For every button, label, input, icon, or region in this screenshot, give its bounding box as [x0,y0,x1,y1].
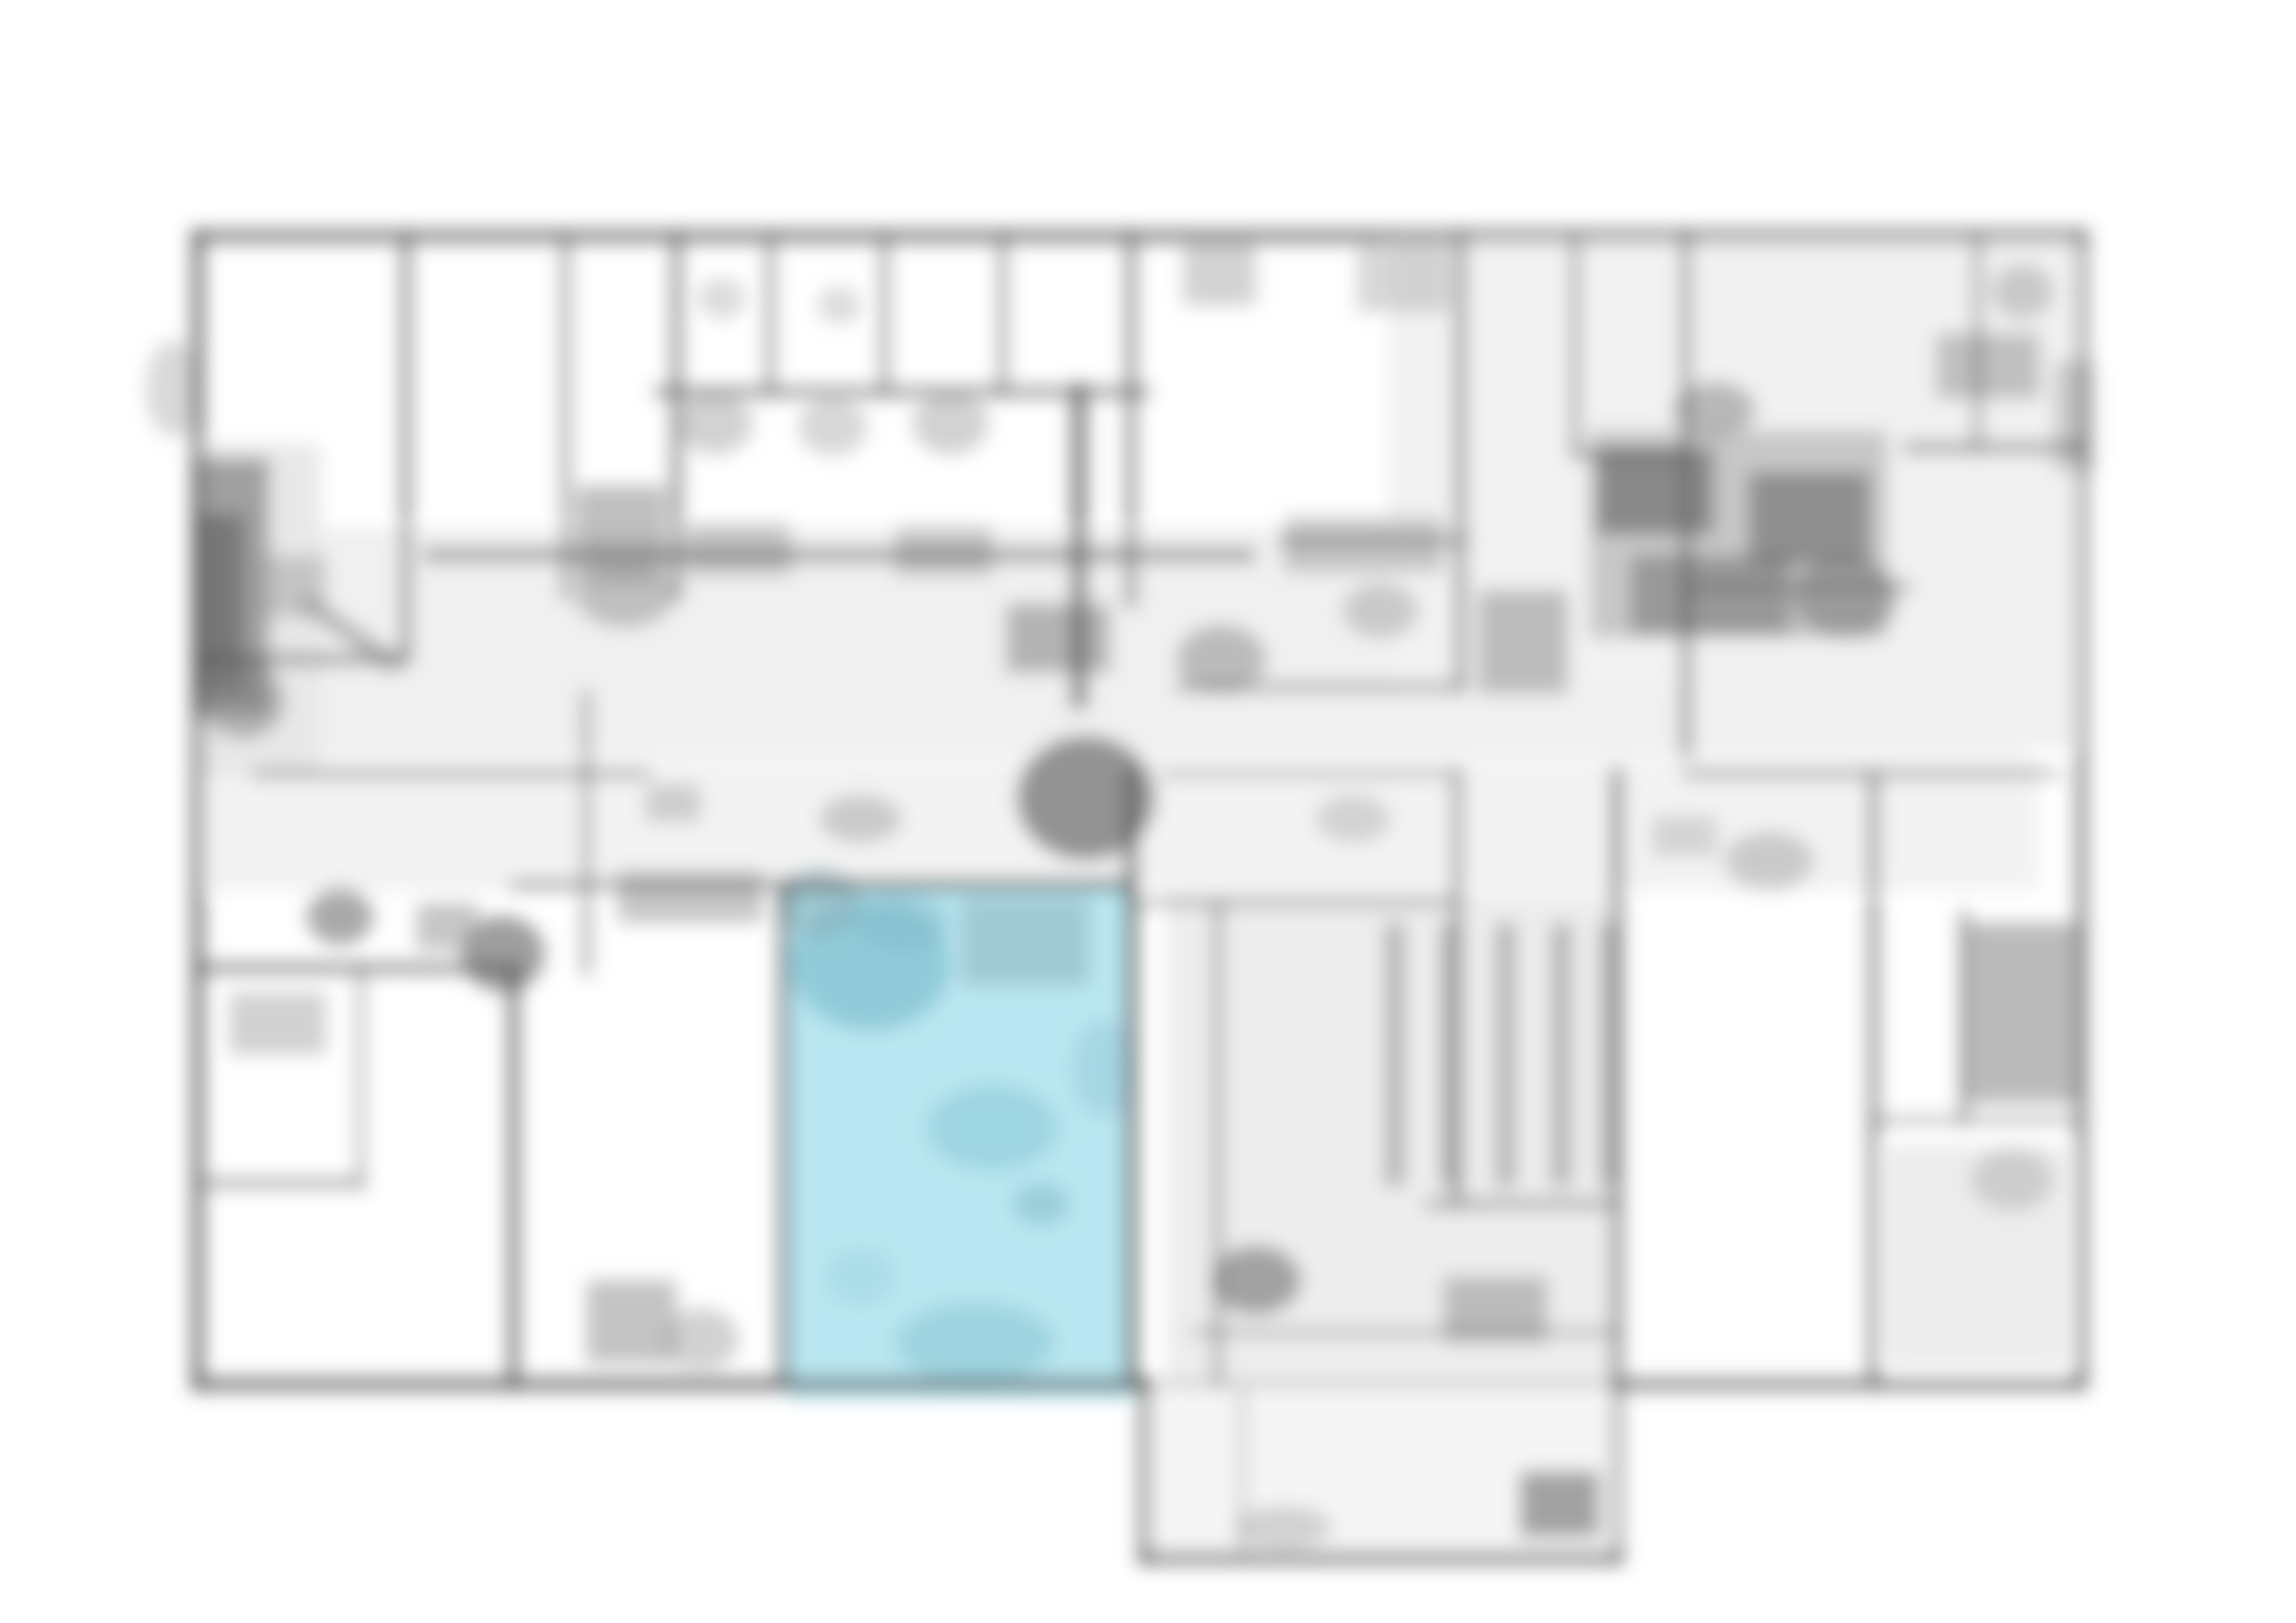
plan-detail-blob [307,887,373,945]
plan-detail-blob [1794,555,1898,638]
highlighted-room-detail [826,1249,895,1305]
plan-detail-blob [1235,1506,1332,1547]
plan-detail-blob [1315,794,1391,843]
plan-detail-blob [1343,583,1419,638]
plan-detail-blob [586,1280,677,1363]
plan-detail-blob [1006,604,1110,673]
plan-detail-blob [819,794,902,843]
plan-detail-blob [677,392,753,454]
plan-detail-blob [1384,923,1405,1187]
plan-detail-blob [1357,243,1450,312]
plan-detail-blob [1520,1471,1599,1537]
plan-detail-blob [1478,590,1568,694]
plan-detail-blob [618,871,763,923]
highlighted-room-detail [895,1302,1055,1383]
plan-detail-blob [2054,361,2095,472]
plan-detail-blob [1964,923,2082,1103]
floorplan-svg [0,0,2296,1623]
plan-detail-blob [1551,923,1572,1187]
plan-detail-blob [1991,264,2054,319]
plan-detail-blob [1211,1246,1301,1315]
plan-detail-blob [1971,1148,2054,1211]
plan-detail-blob [663,1308,739,1370]
plan-detail-blob [576,566,673,628]
plan-detail-blob [1495,923,1516,1187]
plan-detail-blob [416,902,479,951]
plan-detail-blob [1596,448,1714,534]
plan-detail-blob [1749,472,1870,566]
plan-detail-blob [243,555,326,618]
plan-detail-blob [912,392,989,454]
plan-blur-group [146,236,2095,1558]
floorplan-image [0,0,2296,1623]
plan-detail-blob [1183,239,1256,305]
plan-detail-blob [645,784,701,822]
plan-detail-blob [1631,555,1790,635]
plan-detail-blob [798,398,867,456]
highlighted-room-detail [926,1085,1058,1171]
plan-detail-blob [817,286,862,325]
plan-detail-blob [229,992,326,1055]
highlighted-room-detail [961,899,1089,985]
plan-detail-blob [1936,333,2040,399]
plan-detail-blob [697,278,746,319]
plan-detail-blob [201,663,284,739]
highlighted-room-detail [1013,1183,1069,1225]
highlighted-room-detail [853,895,951,951]
plan-detail-blob [1724,831,1814,890]
plan-detail-blob [1651,815,1717,857]
